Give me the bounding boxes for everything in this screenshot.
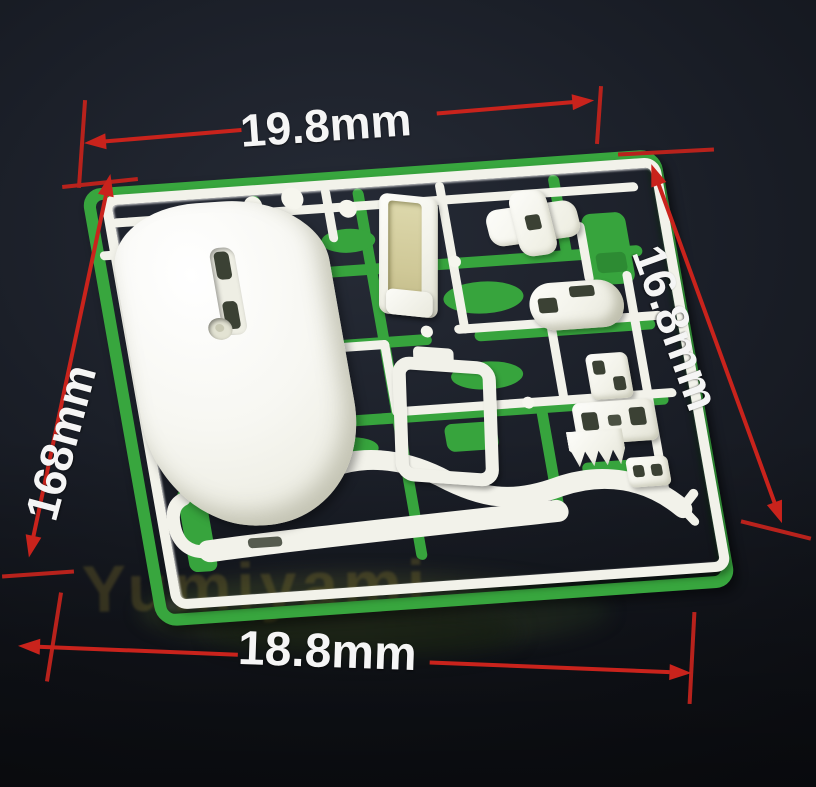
white-runner [551,323,564,398]
slot-opening-top [213,251,233,280]
bezel-frame-tab [413,346,454,365]
oval-part-hole [568,285,595,298]
connector-hole [592,360,606,375]
connector-hole [613,376,627,391]
connector-part [584,352,634,400]
white-runner [345,345,385,348]
cross-button-part [480,184,587,262]
connector-hole [628,407,647,426]
arrowhead-left-icon [18,638,41,655]
battery-cover-channel [388,200,422,302]
clip-part-hole [650,464,663,477]
clip-part-hole [632,465,645,478]
arrowhead-right-icon [669,664,692,681]
arrowhead-right-icon [572,92,595,110]
white-runner [326,192,334,238]
bottom-dimension-label: 18.8mm [237,621,418,682]
oval-part-hole [537,297,559,313]
small-clip-part [625,455,672,488]
runner-nub [420,325,434,338]
battery-cover-part [379,192,438,318]
connector-hole [607,414,622,426]
connector-hole [581,412,600,431]
battery-cover-tab [386,288,433,318]
bezel-frame-part [392,356,500,488]
oval-shell-part [526,278,628,332]
product-photo: Yumiyami [0,0,816,787]
model-kit-sprue [100,158,708,590]
